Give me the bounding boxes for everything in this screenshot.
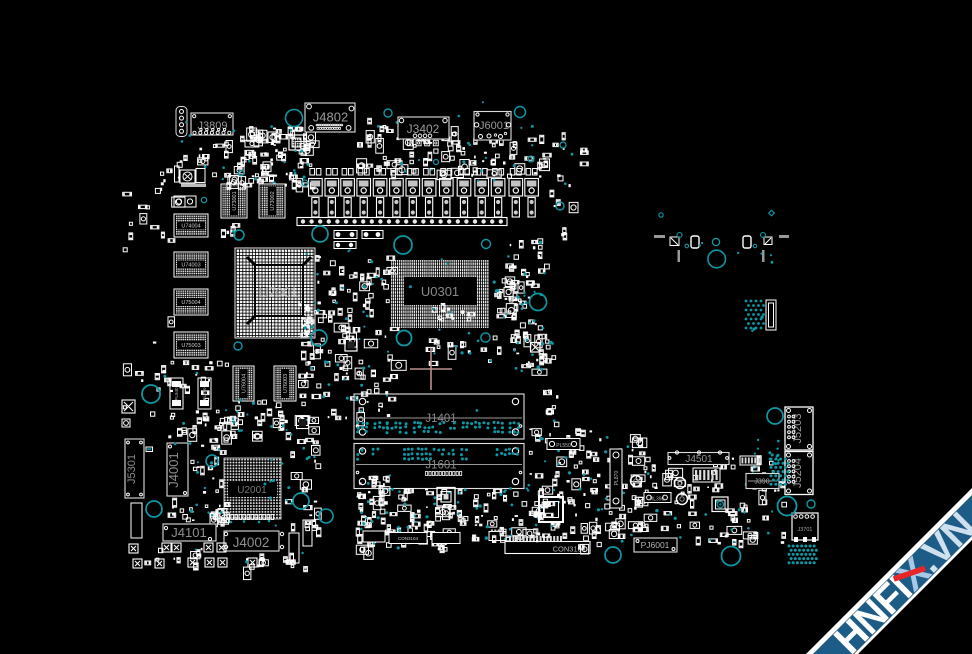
svg-text:U73001: U73001 <box>232 191 238 210</box>
svg-text:U76003: U76003 <box>283 374 289 393</box>
svg-text:U73002: U73002 <box>270 191 276 210</box>
svg-text:J4802: J4802 <box>313 110 348 125</box>
svg-text:J1601: J1601 <box>425 460 456 472</box>
svg-text:PL550: PL550 <box>556 443 571 449</box>
svg-text:U7001: U7001 <box>259 284 298 300</box>
svg-text:J6001: J6001 <box>479 120 509 132</box>
svg-text:PJ6001: PJ6001 <box>641 540 670 550</box>
svg-text:PL940: PL940 <box>202 387 207 401</box>
svg-text:J4501: J4501 <box>685 454 713 465</box>
svg-text:PL940: PL940 <box>174 387 179 401</box>
svg-text:J3402: J3402 <box>407 122 440 136</box>
svg-text:PL870: PL870 <box>614 471 620 486</box>
svg-text:U74003: U74003 <box>181 263 200 269</box>
svg-text:J4101: J4101 <box>171 525 206 540</box>
svg-text:U74004: U74004 <box>181 224 200 230</box>
svg-text:J5301: J5301 <box>126 454 138 484</box>
svg-text:J4002: J4002 <box>233 535 270 550</box>
svg-text:U2001: U2001 <box>237 485 267 496</box>
svg-text:U0301: U0301 <box>421 284 459 299</box>
svg-text:J390: J390 <box>754 479 769 486</box>
svg-text:U75003: U75003 <box>181 343 200 349</box>
svg-text:CON3104: CON3104 <box>398 536 419 541</box>
svg-text:J3701: J3701 <box>798 527 813 533</box>
svg-text:J4001: J4001 <box>166 452 181 487</box>
svg-text:U75004: U75004 <box>181 300 200 306</box>
svg-text:RL390: RL390 <box>650 497 665 503</box>
svg-text:U76004: U76004 <box>242 374 248 393</box>
